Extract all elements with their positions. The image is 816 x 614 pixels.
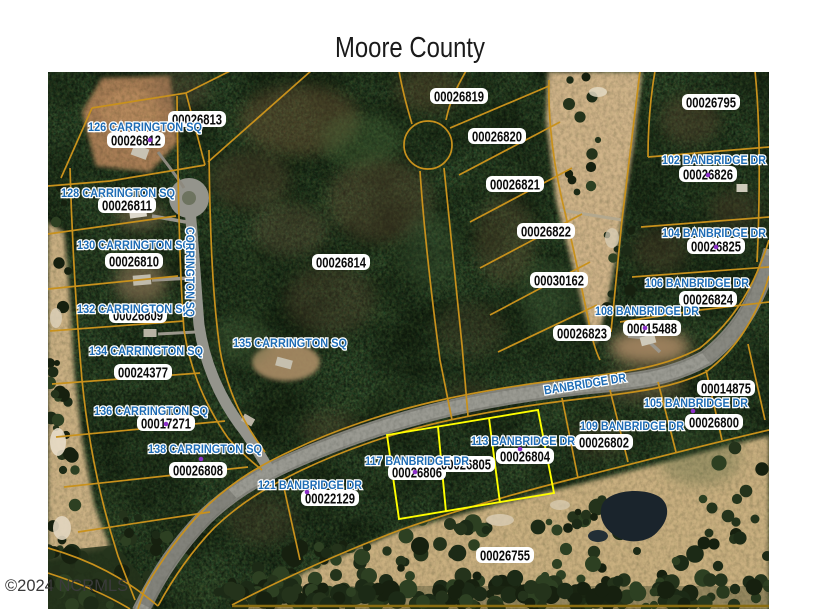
- svg-text:102 BANBRIDGE DR: 102 BANBRIDGE DR: [662, 153, 766, 167]
- svg-text:132 CARRINGTON SQ: 132 CARRINGTON SQ: [77, 302, 191, 316]
- svg-text:00026819: 00026819: [434, 89, 484, 106]
- svg-text:00026810: 00026810: [109, 254, 159, 271]
- svg-text:00026808: 00026808: [173, 463, 223, 480]
- svg-text:109 BANBRIDGE DR: 109 BANBRIDGE DR: [580, 419, 684, 433]
- svg-text:108 BANBRIDGE DR: 108 BANBRIDGE DR: [595, 304, 699, 318]
- svg-text:106 BANBRIDGE DR: 106 BANBRIDGE DR: [645, 276, 749, 290]
- svg-text:00026822: 00026822: [521, 224, 571, 241]
- svg-text:00024377: 00024377: [118, 365, 168, 382]
- svg-text:00030162: 00030162: [534, 273, 584, 290]
- svg-text:113 BANBRIDGE DR: 113 BANBRIDGE DR: [471, 434, 575, 448]
- svg-text:104 BANBRIDGE DR: 104 BANBRIDGE DR: [662, 226, 766, 240]
- svg-text:00026755: 00026755: [480, 548, 530, 565]
- svg-text:CORRINGTON SQ: CORRINGTON SQ: [183, 227, 195, 317]
- svg-text:117 BANBRIDGE DR: 117 BANBRIDGE DR: [365, 454, 469, 468]
- svg-text:128 CARRINGTON SQ: 128 CARRINGTON SQ: [61, 186, 175, 200]
- svg-text:121 BANBRIDGE DR: 121 BANBRIDGE DR: [258, 478, 362, 492]
- svg-text:00026820: 00026820: [472, 129, 522, 146]
- svg-text:00026812: 00026812: [111, 133, 161, 150]
- svg-text:00026800: 00026800: [689, 415, 739, 432]
- svg-text:130 CARRINGTON SQ: 130 CARRINGTON SQ: [77, 238, 191, 252]
- svg-text:135 CARRINGTON SQ: 135 CARRINGTON SQ: [233, 336, 347, 350]
- svg-text:00014875: 00014875: [701, 381, 751, 398]
- svg-text:00022129: 00022129: [305, 491, 355, 508]
- svg-text:00026814: 00026814: [316, 255, 366, 272]
- svg-text:105 BANBRIDGE DR: 105 BANBRIDGE DR: [644, 396, 748, 410]
- svg-text:00015488: 00015488: [627, 321, 677, 338]
- svg-text:138 CARRINGTON SQ: 138 CARRINGTON SQ: [148, 442, 262, 456]
- svg-text:00026811: 00026811: [102, 198, 152, 215]
- svg-text:00026823: 00026823: [557, 326, 607, 343]
- svg-text:Moore County: Moore County: [335, 32, 485, 64]
- svg-text:136 CARRINGTON SQ: 136 CARRINGTON SQ: [94, 404, 208, 418]
- svg-text:126 CARRINGTON SQ: 126 CARRINGTON SQ: [88, 120, 202, 134]
- svg-text:00026821: 00026821: [490, 177, 540, 194]
- svg-text:00026802: 00026802: [579, 435, 629, 452]
- svg-text:00026804: 00026804: [500, 449, 550, 466]
- svg-text:00026795: 00026795: [686, 95, 736, 112]
- svg-text:134 CARRINGTON SQ: 134 CARRINGTON SQ: [89, 344, 203, 358]
- svg-text:©2024 NCRMLS: ©2024 NCRMLS: [5, 577, 128, 595]
